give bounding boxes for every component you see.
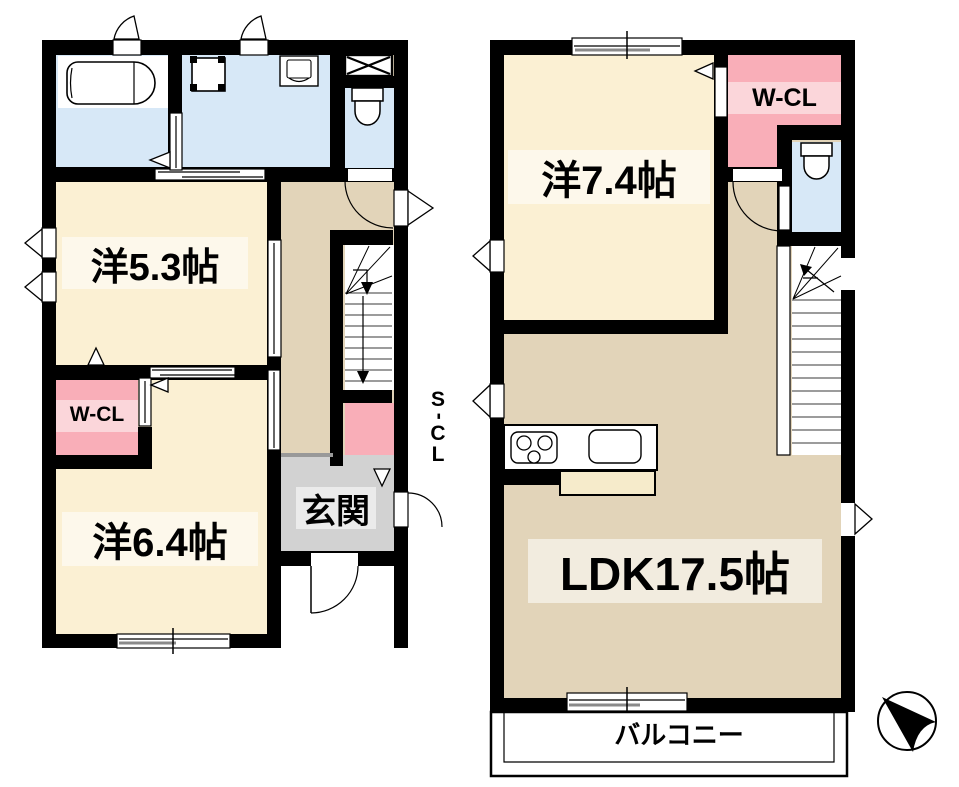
kitchen-low-counter — [560, 471, 655, 495]
window-swing-icon — [473, 385, 490, 417]
room-label-wcl-1f: W-CL — [57, 400, 137, 430]
north-arrow-icon — [878, 692, 936, 752]
stairs-railing — [777, 246, 790, 455]
bathtub-icon — [67, 62, 155, 104]
casement-swing-icon — [114, 16, 139, 39]
casement-window-bath — [113, 40, 141, 55]
room-label-scl: S - C L — [425, 389, 451, 485]
room-label-balcony: バルコニー — [599, 717, 759, 749]
hall-door-opening — [348, 169, 392, 181]
scl-letter: L — [432, 444, 445, 465]
entrance-side-door-arc — [408, 493, 442, 527]
scl-floor — [345, 403, 394, 455]
front-door-opening — [311, 553, 358, 566]
awning-window-53-b — [42, 272, 56, 302]
entrance-step-line — [281, 453, 333, 457]
scl-letter: - — [432, 413, 445, 420]
window-swing-icon — [25, 229, 42, 257]
vanity-bowl — [287, 60, 311, 78]
room-label-wcl-2f: W-CL — [729, 83, 840, 114]
toilet-bowl-icon — [804, 156, 829, 179]
window-swing-icon — [855, 504, 872, 534]
washroom-sliding-door — [155, 169, 265, 180]
toilet-tank-icon — [352, 88, 383, 101]
scl-letter: C — [430, 423, 445, 444]
bedroom-partition-sliding-door — [150, 367, 235, 378]
window-swing-icon — [25, 273, 42, 301]
floor2-plan — [473, 31, 872, 776]
side-exterior-door — [394, 190, 408, 226]
room-label-bedroom-64: 洋6.4帖 — [62, 512, 258, 566]
awning-window-kitchen — [490, 384, 504, 418]
kitchen-sink-icon — [589, 430, 641, 463]
toilet-bowl-icon — [355, 101, 380, 125]
porch-floor — [281, 566, 394, 648]
stairs-window — [841, 258, 855, 290]
awning-window-74 — [490, 240, 504, 272]
room-label-ldk: LDK17.5帖 — [528, 539, 822, 603]
toilet-2f-door — [779, 186, 790, 230]
floor-plan-stage: 洋5.3帖 洋6.4帖 W-CL 玄関 S - C L 洋7.4帖 W-CL L… — [0, 0, 959, 787]
scl-letter: S — [431, 389, 445, 410]
stairs-1f-floor — [345, 245, 394, 390]
window-swing-icon — [473, 241, 490, 271]
ldk-side-window — [841, 503, 855, 536]
floor-plan-drawing — [0, 0, 959, 787]
casement-swing-icon — [241, 16, 266, 39]
bedroom74-sliding-door — [715, 67, 727, 117]
room-label-bedroom-53: 洋5.3帖 — [62, 237, 248, 289]
door-swing-icon — [408, 191, 433, 225]
entrance-side-door — [394, 492, 408, 527]
fixtures-2f — [801, 143, 832, 179]
awning-window-53-a — [42, 228, 56, 258]
toilet-tank-icon — [801, 143, 832, 156]
hall-2f-door-opening — [733, 169, 782, 181]
room-label-bedroom-74: 洋7.4帖 — [508, 150, 710, 204]
casement-window-wash — [240, 40, 268, 55]
room-label-entrance: 玄関 — [296, 487, 376, 529]
